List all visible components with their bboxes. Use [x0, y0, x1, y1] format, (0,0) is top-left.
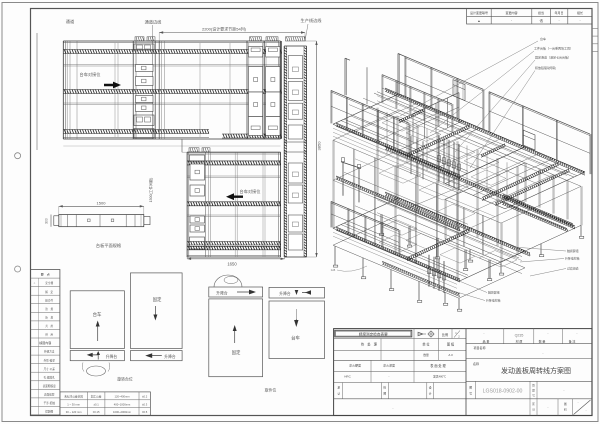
svg-text:担当: 担当: [538, 10, 544, 15]
svg-text:淬火硬度: 淬火硬度: [349, 363, 361, 368]
svg-text:积放链驱动导轨: 积放链驱动导轨: [535, 65, 556, 70]
svg-text:120~400mm: 120~400mm: [114, 395, 130, 399]
svg-text:管: 管: [532, 384, 535, 388]
svg-text:外観方法: 外観方法: [44, 350, 55, 354]
svg-text:理: 理: [532, 389, 535, 393]
svg-text:·: ·: [511, 18, 512, 23]
svg-text:·: ·: [563, 389, 564, 393]
svg-text:台车: 台车: [93, 311, 102, 318]
svg-text:2200(设计要求节距54列): 2200(设计要求节距54列): [202, 26, 247, 32]
svg-text:±0.2: ±0.2: [142, 395, 148, 399]
svg-text:○: ○: [34, 281, 36, 285]
svg-text:LGS018-0902-00: LGS018-0902-00: [483, 389, 523, 395]
svg-text:图: 图: [469, 386, 472, 390]
svg-text:升降台: 升降台: [106, 354, 118, 359]
svg-text:標題欄: 標題欄: [45, 410, 53, 414]
svg-text:1000~2000mm: 1000~2000mm: [113, 410, 132, 414]
svg-text:1 ~ 30 mm: 1 ~ 30 mm: [67, 402, 81, 406]
svg-text:±0.5: ±0.5: [142, 410, 148, 414]
svg-text:表面処理: 表面処理: [44, 393, 55, 397]
svg-text:年月日: 年月日: [554, 10, 563, 15]
svg-text:计: 计: [429, 392, 432, 396]
svg-text:单 位: 单 位: [422, 341, 430, 346]
svg-text:台板平面规格: 台板平面规格: [96, 242, 122, 249]
svg-text:认: 认: [337, 392, 340, 396]
svg-text:变更内容: 变更内容: [505, 10, 517, 15]
svg-text:併 用: 併 用: [45, 333, 53, 337]
svg-text:名称: 名称: [473, 361, 479, 366]
svg-text:±0.3: ±0.3: [142, 402, 148, 406]
svg-text:图: 图: [383, 392, 386, 396]
svg-text:材 质: 材 质: [516, 338, 523, 343]
svg-text:尺寸·公差: 尺寸·公差: [44, 367, 56, 371]
svg-text:·: ·: [585, 409, 586, 413]
svg-text:未标注公差范围: 未标注公差范围: [64, 395, 83, 399]
svg-text:项目名称: 项目名称: [473, 345, 485, 350]
svg-text:设: 设: [429, 386, 432, 390]
svg-text:·: ·: [483, 332, 484, 336]
svg-text:台车对接位: 台车对接位: [80, 71, 101, 78]
svg-text:数 量: 数 量: [539, 338, 546, 343]
svg-text:取件位: 取件位: [265, 388, 277, 393]
svg-text:固定滑道（满足七台台板）: 固定滑道（满足七台台板）: [535, 55, 571, 60]
svg-text:G.B: G.B: [331, 268, 336, 272]
svg-text:A 3: A 3: [448, 353, 453, 357]
svg-text:400~1000mm: 400~1000mm: [114, 402, 131, 406]
svg-text:升降电控箱: 升降电控箱: [486, 298, 501, 303]
svg-text:外形·輪郭: 外形·輪郭: [44, 358, 56, 362]
svg-text:组长: 组长: [577, 10, 583, 15]
svg-text:1650: 1650: [227, 262, 237, 267]
svg-text:图: 图: [564, 402, 567, 406]
svg-text:·: ·: [577, 401, 578, 405]
svg-text:号: 号: [469, 392, 472, 396]
svg-text:Q235: Q235: [515, 334, 524, 338]
svg-text:解 定: 解 定: [45, 290, 53, 294]
svg-text:触摸屏组: 触摸屏组: [488, 290, 500, 295]
svg-text:升降台: 升降台: [164, 354, 176, 359]
svg-text:热 处 理: 热 处 理: [361, 341, 378, 346]
svg-text:号: 号: [532, 394, 535, 398]
svg-text:台车: 台车: [540, 36, 546, 41]
svg-text:干渉·抵触: 干渉·抵触: [44, 401, 56, 405]
svg-text:检: 检: [383, 386, 386, 390]
svg-text:·: ·: [576, 332, 577, 336]
svg-text:工件台板（一台重两块工周）: 工件台板（一台重两块工周）: [534, 46, 573, 51]
svg-text:1500: 1500: [97, 201, 107, 206]
svg-text:·: ·: [388, 375, 389, 379]
svg-text:升降台: 升降台: [279, 291, 291, 296]
svg-text:要 点: 要 点: [41, 272, 50, 277]
svg-text:升降电控箱: 升降电控箱: [565, 256, 580, 261]
svg-text:发动盖板周转线方案图: 发动盖板周转线方案图: [501, 366, 571, 375]
svg-text:备 注: 备 注: [569, 338, 576, 343]
svg-text:台车对接位: 台车对接位: [240, 188, 261, 195]
svg-text:新 規: 新 規: [45, 316, 53, 320]
svg-text:精度测定检查表要: 精度测定检查表要: [359, 331, 388, 336]
svg-text:码: 码: [564, 408, 567, 412]
svg-text:比例: 比例: [442, 332, 448, 337]
svg-text:30 ~ 120 mm: 30 ~ 120 mm: [66, 410, 83, 414]
svg-text:孔·螺紋孔: 孔·螺紋孔: [44, 375, 56, 379]
svg-text:表 面 处 理: 表 面 处 理: [430, 363, 446, 368]
svg-text:±0.1: ±0.1: [93, 402, 99, 406]
svg-text:旋转台位: 旋转台位: [117, 377, 133, 382]
svg-text:生产线边线: 生产线边线: [301, 17, 323, 24]
svg-text:共 用: 共 用: [45, 324, 53, 328]
svg-text:·: ·: [547, 332, 548, 336]
svg-text:品 番: 品 番: [483, 338, 490, 343]
svg-text:3850: 3850: [317, 141, 322, 151]
svg-text:組合件: 組合件: [45, 298, 53, 302]
svg-text:·: ·: [542, 352, 543, 356]
svg-text:发黑480℃: 发黑480℃: [433, 375, 446, 379]
svg-text:1500(工件间距): 1500(工件间距): [148, 178, 153, 203]
svg-text:承: 承: [337, 386, 340, 390]
svg-text:加工公差: 加工公差: [91, 395, 102, 399]
svg-text:台车: 台车: [291, 335, 300, 342]
svg-text:升降台: 升降台: [216, 291, 228, 296]
svg-text:图 幅: 图 幅: [447, 341, 455, 346]
svg-text:±0.15: ±0.15: [93, 410, 100, 414]
svg-text:HRC: HRC: [344, 375, 351, 379]
svg-text:·: ·: [579, 18, 580, 23]
svg-text:·: ·: [547, 406, 548, 410]
svg-text:通道边线: 通道边线: [145, 19, 163, 26]
svg-text:淬火深度: 淬火深度: [383, 363, 395, 368]
svg-text:·: ·: [392, 407, 393, 411]
svg-text:数量: 数量: [423, 353, 429, 357]
svg-text:·: ·: [558, 18, 559, 23]
svg-text:熱 規: 熱 規: [45, 307, 53, 311]
svg-text:过渡滑道: 过渡滑道: [567, 266, 579, 271]
svg-text:区: 区: [532, 402, 535, 406]
svg-text:设计变更联号: 设计变更联号: [470, 10, 488, 15]
svg-text:触摸屏组: 触摸屏组: [567, 248, 579, 253]
svg-text:固定: 固定: [153, 296, 162, 303]
svg-text:分: 分: [532, 408, 535, 412]
svg-text:検図内容: 検図内容: [39, 340, 51, 345]
svg-text:▲: ▲: [477, 19, 480, 23]
svg-text:表面粗糙度: 表面粗糙度: [43, 384, 56, 388]
svg-text:300: 300: [44, 218, 48, 224]
svg-text:通道: 通道: [66, 18, 75, 25]
svg-text:安全柵: 安全柵: [45, 281, 53, 285]
svg-text:固定: 固定: [232, 349, 241, 356]
